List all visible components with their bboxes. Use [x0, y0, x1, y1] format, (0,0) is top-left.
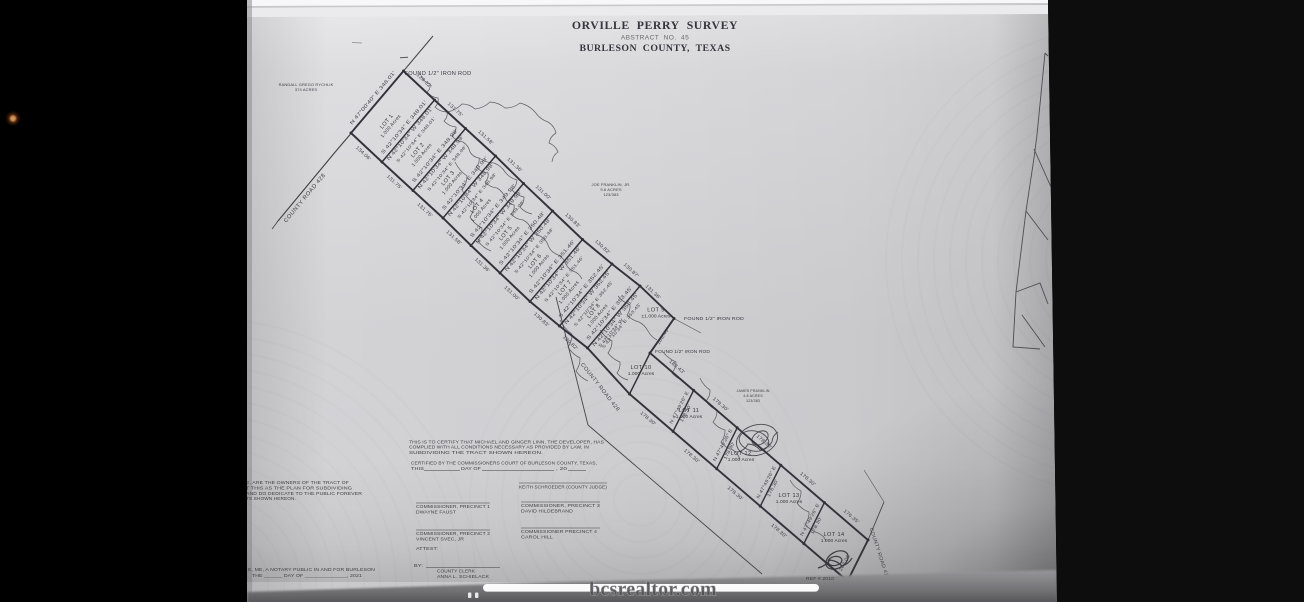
svg-text:LOT 10: LOT 10 [631, 365, 652, 371]
svg-text:COMMISSIONER, PRECINCT 3: COMMISSIONER, PRECINCT 3 [521, 503, 600, 508]
svg-text:1.000 Acres: 1.000 Acres [821, 538, 848, 544]
svg-text:LOT 13: LOT 13 [779, 493, 800, 499]
svg-text:123/383: 123/383 [603, 192, 619, 197]
svg-text:COUNTY CLERK: COUNTY CLERK [437, 569, 475, 574]
svg-text:LOT 9: LOT 9 [647, 308, 664, 314]
svg-text:CERTIFIED BY THE COMMISSIONERS: CERTIFIED BY THE COMMISSIONERS COURT OF … [411, 461, 597, 466]
svg-text:E, ARE THE OWNERS OF THE TRACT: E, ARE THE OWNERS OF THE TRACT OF [246, 480, 349, 485]
svg-text:JAMES FRANKLIN: JAMES FRANKLIN [737, 389, 770, 393]
svg-text:VINCENT SVEC, JR: VINCENT SVEC, JR [416, 537, 465, 542]
svg-text:REF # 2010: REF # 2010 [806, 576, 835, 581]
svg-text:DWAYNE FAUST: DWAYNE FAUST [416, 510, 456, 515]
svg-text:KEITH SCHROEDER (COUNTY JUDGE): KEITH SCHROEDER (COUNTY JUDGE) [519, 485, 607, 491]
svg-text:bcsrealtor.com: bcsrealtor.com [589, 579, 717, 601]
svg-text:1.000 Acres: 1.000 Acres [628, 371, 655, 377]
svg-text:LOT 11: LOT 11 [679, 408, 700, 414]
svg-text:T THIS AS THE PLAN FOR SUBDIVI: T THIS AS THE PLAN FOR SUBDIVIDING [246, 485, 352, 490]
svg-text:CAROL HILL: CAROL HILL [521, 535, 553, 540]
svg-text:AND DO DEDICATE TO THE PUBLIC: AND DO DEDICATE TO THE PUBLIC FOREVER [246, 491, 363, 496]
svg-text:, 20: , 20 [556, 466, 567, 471]
svg-text:BY:: BY: [414, 563, 423, 568]
svg-text:4.8 ACRES: 4.8 ACRES [743, 394, 763, 398]
svg-text:COMMISSIONER PRECINCT 4: COMMISSIONER PRECINCT 4 [521, 529, 597, 534]
svg-text:DAY OF: DAY OF [461, 466, 481, 471]
svg-text:DAVID HILDEBRAND: DAVID HILDEBRAND [521, 509, 574, 514]
svg-text:ATTEST:: ATTEST: [416, 546, 438, 551]
svg-text:FOUND 1/2" IRON ROD: FOUND 1/2" IRON ROD [655, 349, 711, 354]
svg-text:BURLESON COUNTY, TEXAS: BURLESON COUNTY, TEXAS [580, 43, 731, 54]
svg-text:1.000 Acres: 1.000 Acres [776, 499, 803, 505]
svg-text:1.000 Acres: 1.000 Acres [676, 414, 703, 420]
svg-text:374 ACRES: 374 ACRES [295, 87, 317, 92]
svg-text:THE ______ DAY OF ____________: THE ______ DAY OF ______________, 2021 [252, 573, 362, 578]
svg-text:1.000 Acres: 1.000 Acres [728, 457, 755, 463]
svg-text:COMMISSIONER, PRECINCT 1: COMMISSIONER, PRECINCT 1 [416, 504, 490, 509]
svg-text:THIS: THIS [411, 466, 424, 471]
svg-text:ANNA L. SCHIELACK: ANNA L. SCHIELACK [437, 574, 489, 579]
svg-text:TS SHOWN HEREON.: TS SHOWN HEREON. [246, 496, 296, 501]
svg-text:ABSTRACT NO. 45: ABSTRACT NO. 45 [621, 35, 689, 42]
svg-text:ORVILLE PERRY SURVEY: ORVILLE PERRY SURVEY [572, 18, 738, 32]
svg-text:LOT 14: LOT 14 [824, 532, 845, 538]
svg-text:FOUND 1/2" IRON ROD: FOUND 1/2" IRON ROD [684, 316, 745, 321]
svg-text:SUBDIVIDING THE TRACT SHOWN HE: SUBDIVIDING THE TRACT SHOWN HEREON. [409, 450, 543, 455]
svg-text:123/383: 123/383 [746, 399, 760, 403]
svg-text:±1.000 Acres: ±1.000 Acres [641, 314, 671, 320]
svg-text:E, ME, A NOTARY PUBLIC IN AND: E, ME, A NOTARY PUBLIC IN AND FOR BURLES… [248, 567, 375, 572]
svg-text:LOT 12: LOT 12 [731, 451, 752, 457]
svg-text:COMMISSIONER, PRECINCT 2: COMMISSIONER, PRECINCT 2 [416, 531, 490, 536]
